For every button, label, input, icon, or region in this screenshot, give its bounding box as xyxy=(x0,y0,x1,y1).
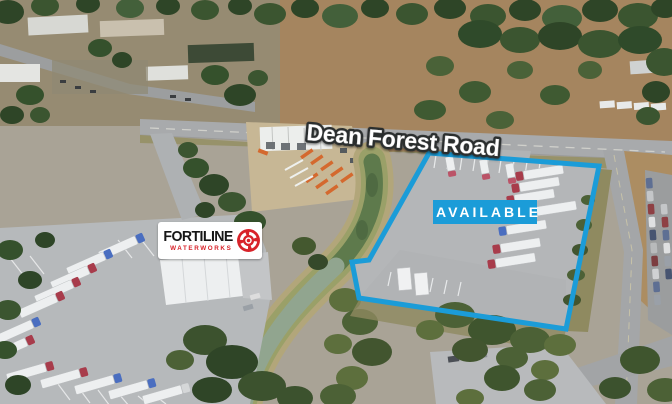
fortiline-logo-text: FORTILINE WATERWORKS xyxy=(159,230,233,252)
fortiline-emblem-icon xyxy=(236,228,261,253)
logo-title: FORTILINE xyxy=(163,230,232,244)
logo-subtitle: WATERWORKS xyxy=(170,245,232,252)
fortiline-logo: FORTILINE WATERWORKS xyxy=(158,222,262,259)
aerial-scene: Dean Forest Road xyxy=(0,0,672,404)
aerial-photo: Dean Forest Road AVAILABLE FORTILINE WAT… xyxy=(0,0,672,404)
available-badge: AVAILABLE xyxy=(433,200,537,224)
